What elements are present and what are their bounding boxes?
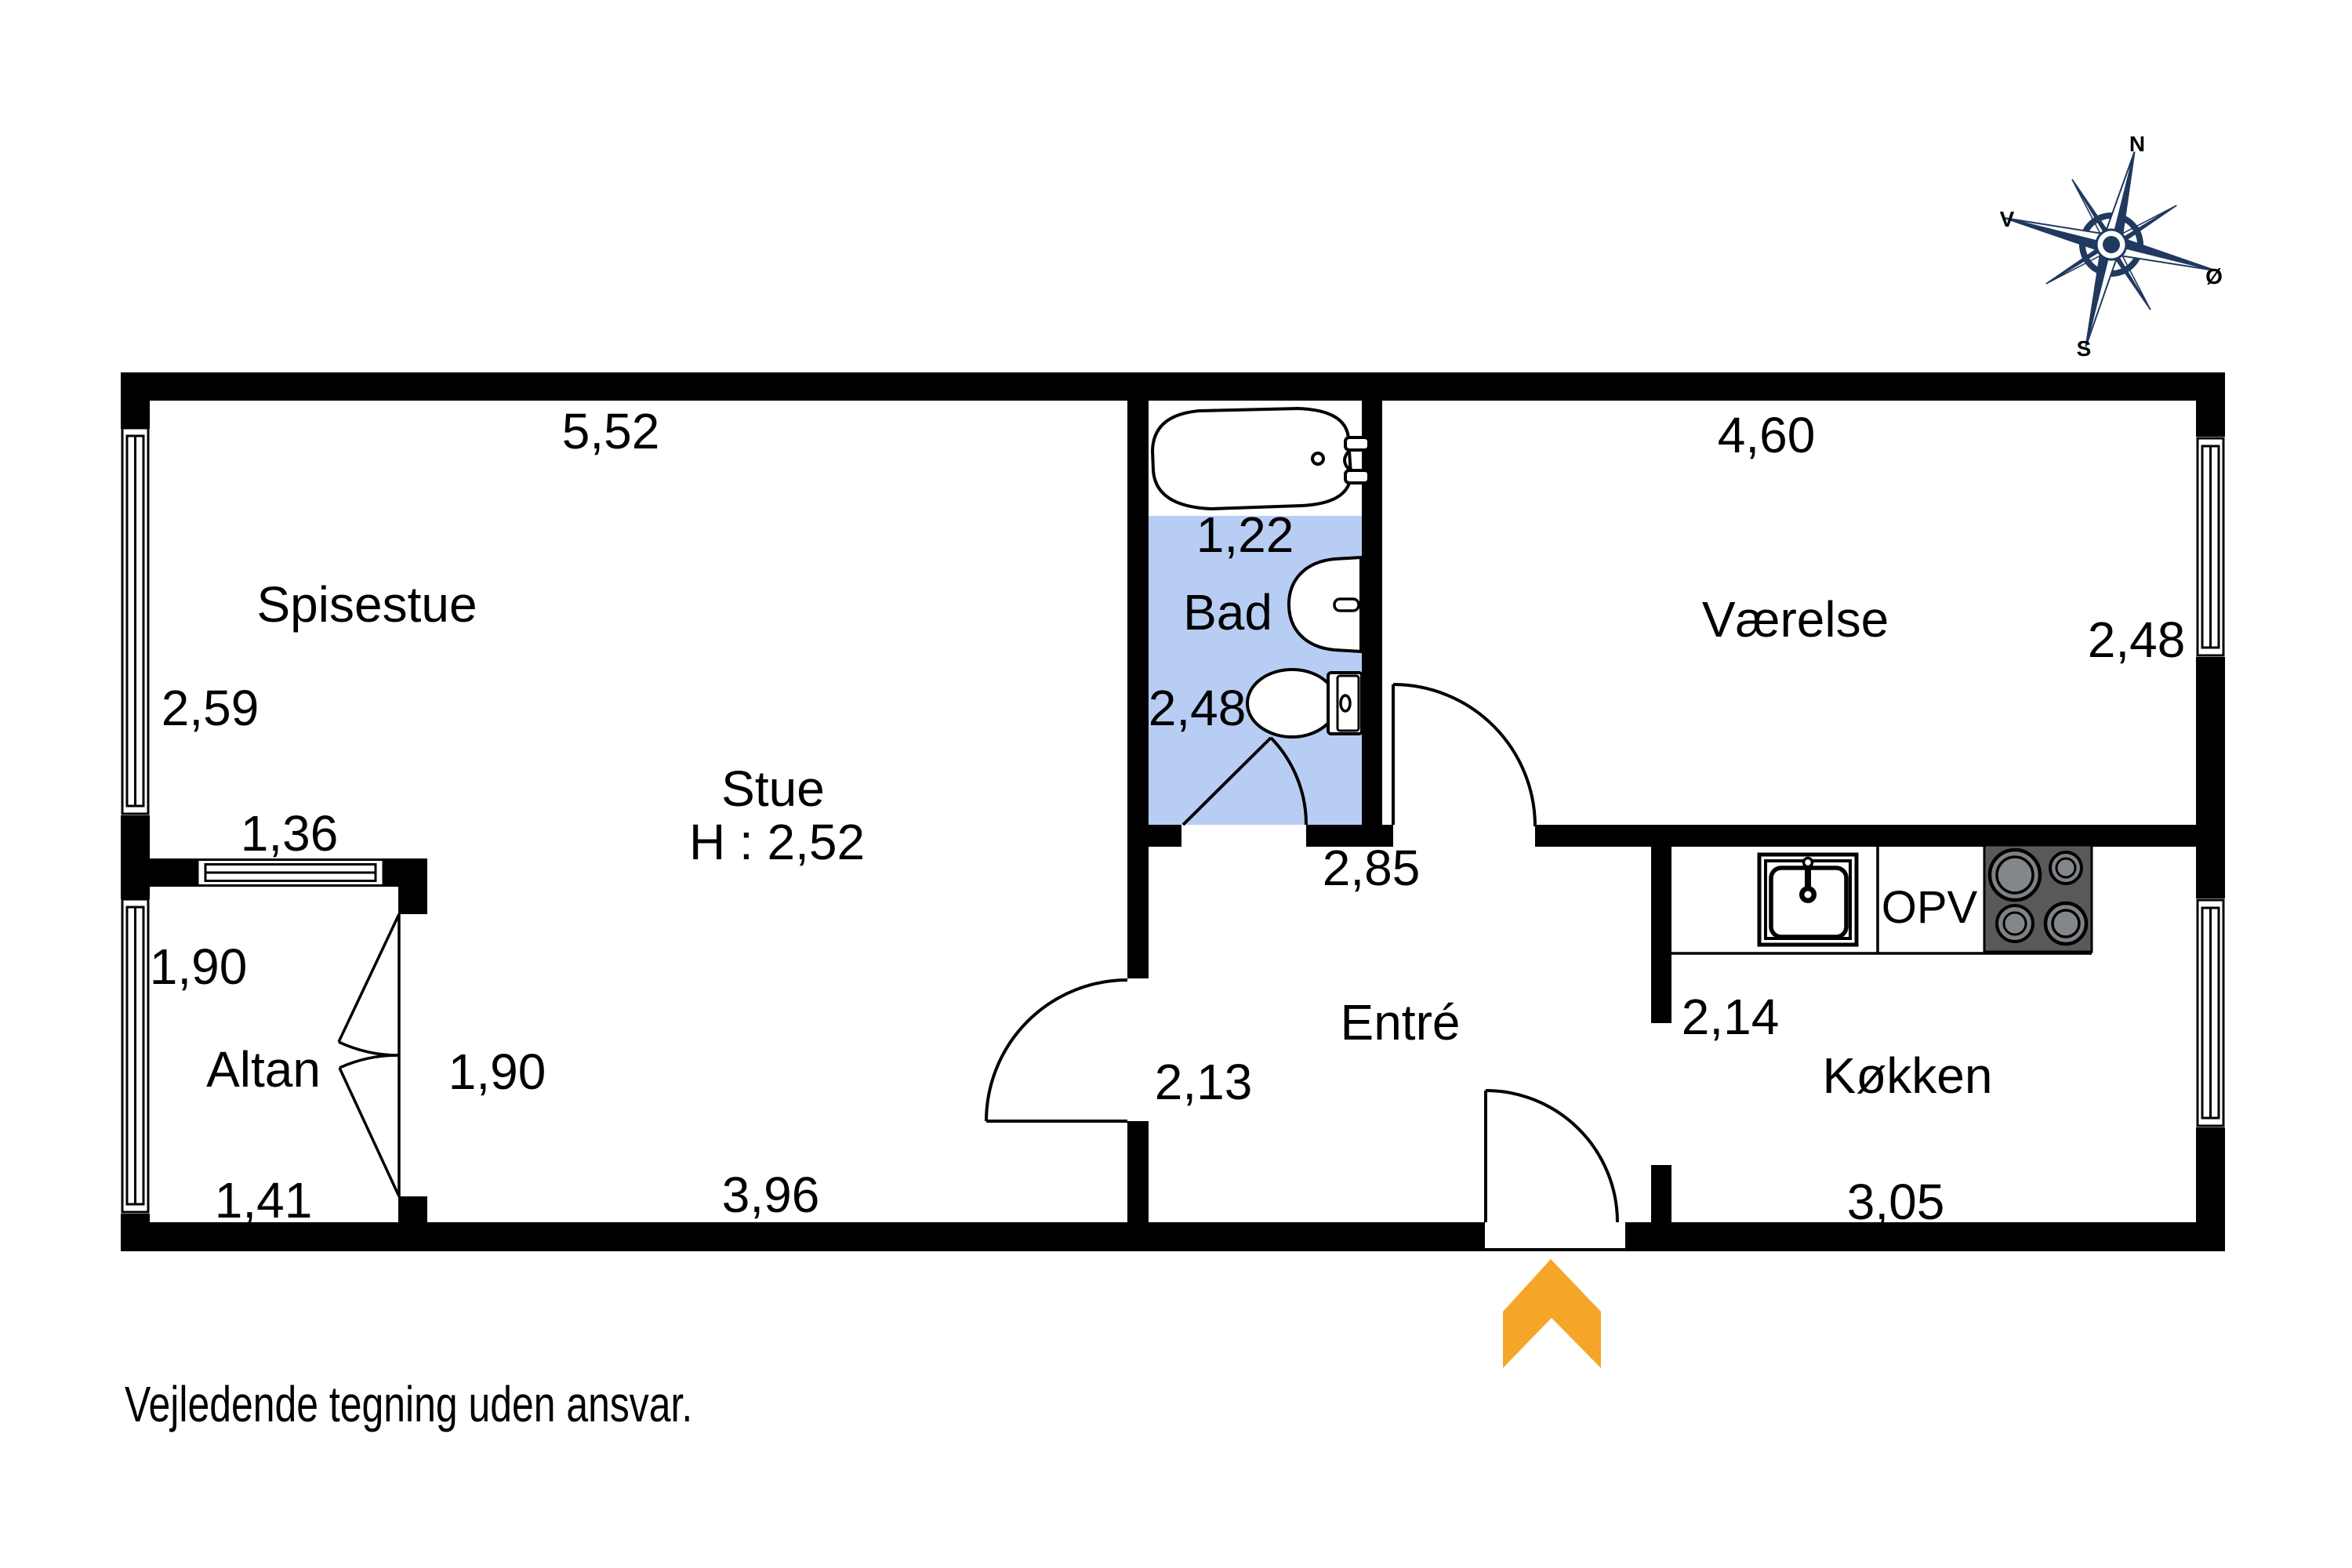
svg-text:1,90: 1,90 [448,1044,546,1100]
svg-text:2,13: 2,13 [1155,1054,1253,1110]
svg-text:1,90: 1,90 [150,938,248,995]
svg-text:3,96: 3,96 [722,1167,820,1223]
svg-text:2,14: 2,14 [1682,989,1780,1045]
svg-text:Stue: Stue [721,760,825,817]
svg-text:1,36: 1,36 [241,805,339,862]
svg-text:2,59: 2,59 [162,680,260,736]
svg-text:2,48: 2,48 [1149,680,1247,736]
svg-text:Entré: Entré [1341,994,1461,1051]
svg-text:Ø: Ø [2205,264,2223,289]
svg-text:1,41: 1,41 [215,1172,313,1229]
svg-text:V: V [2000,207,2015,231]
svg-text:4,60: 4,60 [1718,407,1816,463]
svg-text:H : 2,52: H : 2,52 [689,814,865,870]
svg-text:Værelse: Værelse [1702,591,1889,648]
svg-text:2,85: 2,85 [1323,840,1421,896]
svg-text:2,48: 2,48 [2088,612,2186,668]
svg-text:Altan: Altan [206,1041,321,1098]
svg-text:3,05: 3,05 [1847,1174,1945,1230]
svg-text:N: N [2129,132,2145,156]
svg-text:1,22: 1,22 [1196,506,1294,563]
svg-text:Køkken: Køkken [1823,1047,1993,1104]
svg-text:S: S [2077,336,2092,361]
svg-text:Bad: Bad [1183,584,1272,641]
svg-text:Vejledende tegning uden ansvar: Vejledende tegning uden ansvar. [125,1377,692,1432]
svg-text:OPV: OPV [1882,882,1978,933]
svg-text:5,52: 5,52 [562,403,660,459]
svg-text:Spisestue: Spisestue [256,576,477,633]
